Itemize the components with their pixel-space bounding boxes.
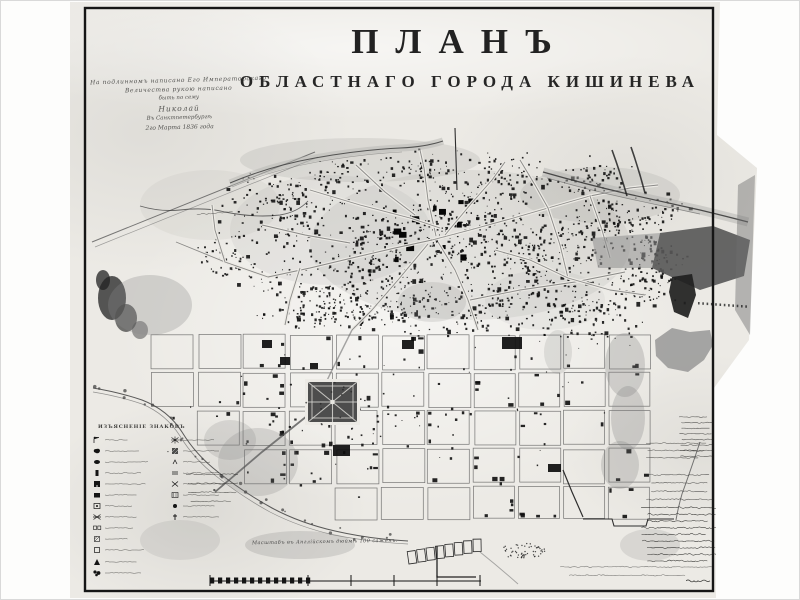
- legend-item: [92, 489, 164, 500]
- handwriting-strokes: [641, 503, 716, 563]
- legend-symbol-small-blob-icon: [170, 502, 180, 510]
- bottom-right-handwritten-note-1: [645, 469, 713, 502]
- legend-symbol-church-cross-icon: [170, 513, 180, 521]
- legend-item-label: [105, 525, 133, 531]
- legend-symbol-crossed-lines-icon: [92, 513, 102, 521]
- handwriting-strokes: [686, 571, 712, 585]
- handwritten-signature: [686, 570, 712, 584]
- legend-item-label: [183, 448, 220, 454]
- legend-symbol-open-square-icon: [92, 546, 102, 554]
- handwriting-strokes: [186, 468, 238, 504]
- legend-item: [92, 501, 164, 512]
- legend-item: [92, 467, 164, 478]
- bottom-right-handwritten-note-2: [641, 503, 716, 563]
- legend-symbol-hatched-square-icon: [170, 447, 180, 455]
- legend-item-label: [105, 492, 141, 498]
- legend-item: [170, 512, 240, 523]
- legend-item: [92, 434, 164, 445]
- legend-item-label: [105, 437, 131, 443]
- legend-item-label: [105, 470, 145, 476]
- legend-item-label: [105, 514, 139, 520]
- map-photograph: ПЛАНЪ ОБЛАСТНАГО ГОРОДА КИШИНЕВА На подл…: [0, 0, 800, 600]
- legend-symbol-filled-blob-icon: [92, 447, 102, 455]
- map-subtitle: ОБЛАСТНАГО ГОРОДА КИШИНЕВА: [190, 72, 750, 92]
- legend-symbol-filled-oval-icon: [92, 458, 102, 466]
- legend-item: [92, 567, 164, 578]
- city-garden-park: [305, 379, 360, 425]
- legend-symbol-filled-rect-icon: [92, 491, 102, 499]
- legend-item: [92, 456, 164, 467]
- handwriting-strokes: [646, 438, 708, 460]
- legend-item: [170, 434, 240, 445]
- legend-item: [92, 478, 164, 489]
- legend-item: [170, 456, 240, 467]
- legend-header: ИЗЪЯСНЕНІЕ ЗНАКОВЪ: [92, 424, 242, 430]
- handwriting-strokes: [645, 469, 713, 502]
- legend-symbol-open-rect-dot-icon: [92, 502, 102, 510]
- legend-item-label: [183, 459, 215, 465]
- legend-item-label: [105, 459, 148, 465]
- legend-symbol-filled-rect-tall-icon: [92, 469, 102, 477]
- legend-item: [92, 445, 164, 456]
- legend-item-label: [105, 547, 144, 553]
- legend-symbol-cross-mark-icon: [170, 480, 180, 488]
- legend-item: [92, 523, 164, 534]
- legend-symbol-starburst-icon: [170, 436, 180, 444]
- legend-symbol-dark-wedge-icon: [92, 558, 102, 566]
- legend-column-left: [92, 434, 164, 578]
- legend-item: [170, 445, 240, 456]
- legend-symbol-parallel-dashes-icon: [170, 469, 180, 477]
- legend-item: [92, 545, 164, 556]
- legend-item-label: [105, 448, 139, 454]
- legend-columns: [92, 434, 242, 578]
- imperial-note-signature: Николай: [90, 102, 268, 114]
- imperial-approval-note: На подлинномъ написано Его Императорскаг…: [89, 76, 268, 133]
- legend-symbol-notched-rect-icon: [92, 480, 102, 488]
- legend-item: [92, 534, 164, 545]
- legend-item-label: [183, 437, 214, 443]
- legend-symbol-tick-mark-icon: [170, 458, 180, 466]
- legend-side-handwritten-note: [186, 468, 238, 504]
- legend-item-label: [105, 481, 146, 487]
- lot-strip: [407, 539, 545, 564]
- legend-item-label: [183, 514, 224, 520]
- legend-item-label: [105, 536, 133, 542]
- legend-item: [92, 556, 164, 567]
- legend-symbol-hatched-square-small-icon: [92, 535, 102, 543]
- legend-item: [92, 512, 164, 523]
- road-handwritten-label: [196, 199, 238, 209]
- legend-item-label: [105, 503, 132, 509]
- map-title: ПЛАНЪ: [180, 22, 740, 62]
- legend-column-right: [170, 434, 240, 578]
- left-margin-stains: [96, 270, 192, 339]
- legend-item-label: [105, 559, 141, 565]
- legend-symbol-stippled-square-icon: [170, 491, 180, 499]
- legend-symbol-open-square-pair-icon: [92, 524, 102, 532]
- legend-item-label: [105, 570, 147, 576]
- legend-symbol-flag-mark-icon: [92, 436, 102, 444]
- bottom-right-handwritten-note-0: [646, 438, 708, 460]
- legend-symbol-dark-cluster-icon: [92, 569, 102, 577]
